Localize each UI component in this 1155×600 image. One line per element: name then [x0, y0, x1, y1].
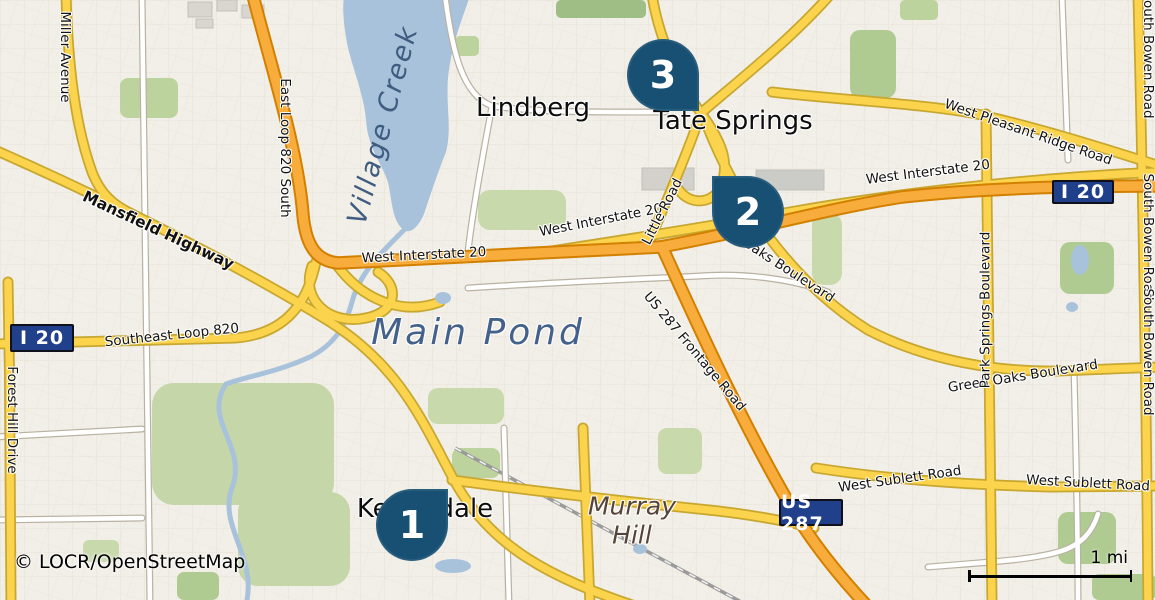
- highway-shield-i20-west: I 20: [10, 324, 74, 352]
- map-marker-number: 3: [650, 53, 676, 97]
- map-marker-1[interactable]: 1: [376, 489, 448, 561]
- highway-shield-us287: US 287: [779, 499, 843, 526]
- attribution-text: © LOCR/OpenStreetMap: [14, 551, 245, 573]
- scale-bar-tick-right: [1130, 570, 1133, 582]
- map-marker-number: 1: [399, 503, 425, 547]
- scale-bar-tick-left: [968, 570, 971, 582]
- highway-shield-i20-east: I 20: [1052, 180, 1114, 204]
- map-canvas[interactable]: [0, 0, 1155, 600]
- map-marker-number: 2: [735, 190, 761, 234]
- scale-bar-line: [968, 575, 1132, 578]
- map-marker-3[interactable]: 3: [627, 39, 699, 111]
- map-root: LindbergTate SpringsKennedaleVillage Cre…: [0, 0, 1155, 600]
- scale-label: 1 mi: [1090, 548, 1128, 568]
- map-marker-2[interactable]: 2: [712, 176, 784, 248]
- scale-bar: 1 mi: [968, 546, 1132, 582]
